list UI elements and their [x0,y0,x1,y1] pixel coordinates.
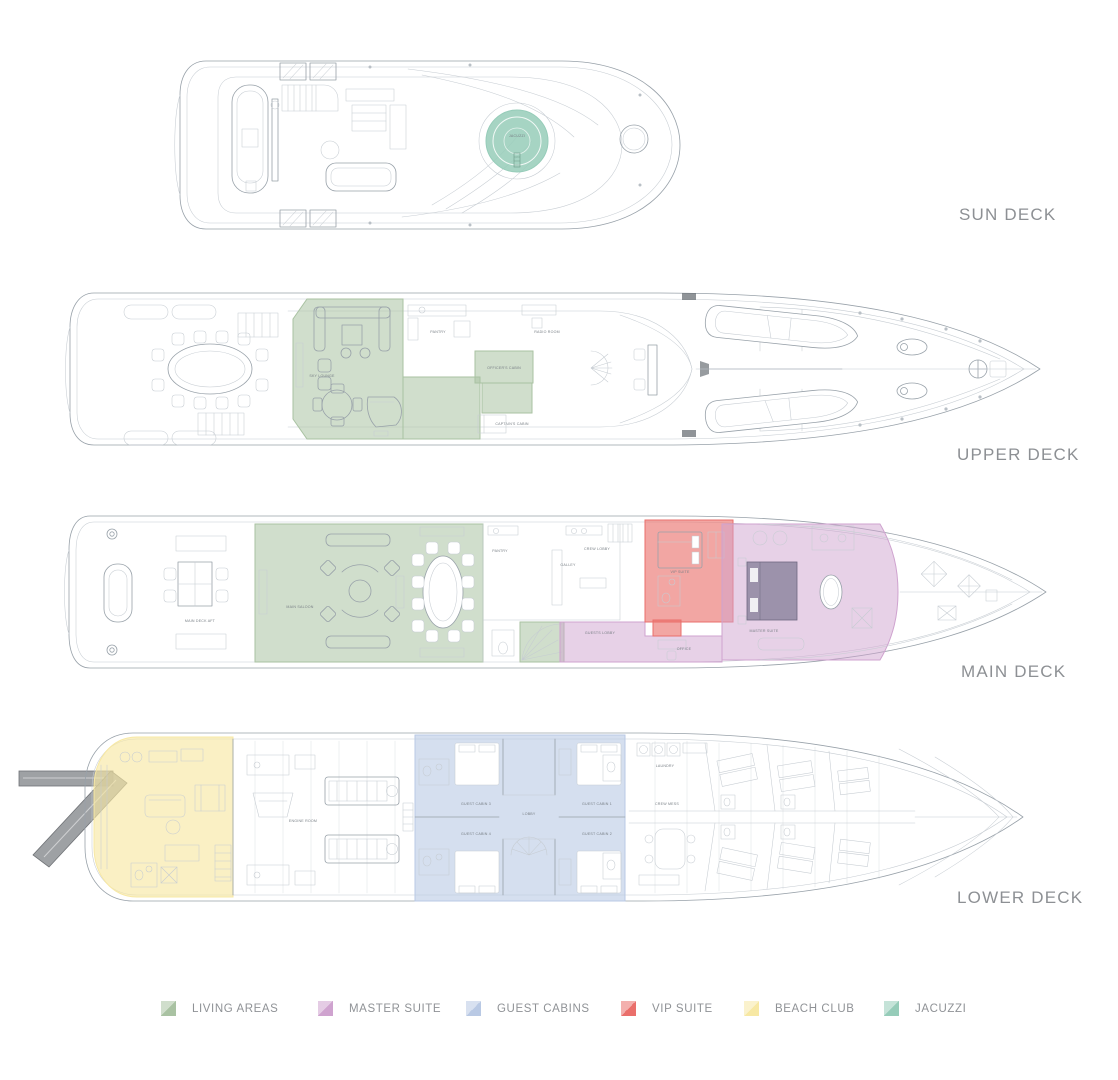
engine-room [247,755,413,885]
master-suite [722,524,898,660]
staircase [282,85,338,111]
room-label-officers-cabin: OFFICER'S CABIN [487,366,521,370]
crane [271,99,279,181]
legend-label-living-areas: LIVING AREAS [192,1003,278,1015]
bow-lines [899,749,1017,885]
room-label-guest-cabin-2: GUEST CABIN 2 [582,832,612,836]
vip-suite [645,520,733,636]
room-label-jacuzzi: JACUZZI [509,134,525,138]
sun-deck-plan: JACUZZI [170,55,690,235]
legend-label-master-suite: MASTER SUITE [349,1003,441,1015]
foredeck-tender-2 [704,386,860,434]
room-label-galley: GALLEY [560,563,576,567]
yacht-deck-plans: JACUZZI SUN DECK [0,0,1118,1080]
room-label-radio-room: RADIO ROOM [534,330,560,334]
jacuzzi: JACUZZI [479,103,555,179]
room-label-crew-lobby: CREW LOBBY [584,547,610,551]
jacuzzi-region [486,110,548,172]
room-label-pantry-upper: PANTRY [430,330,446,334]
liferaft-boxes [280,63,336,227]
legend-item-beach-club: BEACH CLUB [744,1001,855,1016]
legend-item-vip-suite: VIP SUITE [621,1001,713,1016]
sun-deck-label: SUN DECK [959,205,1056,225]
room-label-master-suite: MASTER SUITE [750,629,779,633]
bar-counter [346,89,406,149]
legend-swatch-jacuzzi [884,1001,899,1016]
room-label-guest-cabin-1: GUEST CABIN 1 [582,802,612,806]
legend-swatch-vip-suite [621,1001,636,1016]
master-region-lobby-office [560,622,722,662]
legend-item-living-areas: LIVING AREAS [161,1001,278,1016]
aft-deck-furniture [104,536,228,649]
room-label-engine-room: ENGINE ROOM [289,819,317,823]
legend-swatch-living-areas [161,1001,176,1016]
legend-swatch-guest-cabins [466,1001,481,1016]
legend-label-jacuzzi: JACUZZI [915,1003,966,1015]
room-label-main-deck-aft: MAIN DECK AFT [185,619,216,623]
mooring-cleats [107,529,117,655]
legend-label-vip-suite: VIP SUITE [652,1003,713,1015]
room-label-vip-suite: VIP SUITE [670,570,690,574]
hull-outline [180,61,680,229]
living-region-mid [403,377,480,439]
room-label-sky-lounge: SKY LOUNGE [309,374,335,378]
legend-item-master-suite: MASTER SUITE [318,1001,441,1016]
legend-label-guest-cabins: GUEST CABINS [497,1003,590,1015]
room-label-captains-cabin: CAPTAIN'S CABIN [495,422,529,426]
wheelhouse [591,345,657,395]
legend-label-beach-club: BEACH CLUB [775,1003,855,1015]
tender-boat [232,85,268,193]
room-label-guest-cabin-3: GUEST CABIN 3 [461,802,491,806]
pantry-fixtures [408,305,556,340]
living-region-sky-lounge [293,299,403,439]
upper-deck-label: UPPER DECK [957,445,1080,465]
lower-deck-label: LOWER DECK [957,888,1083,908]
lounge-sofa [321,141,396,191]
room-label-crew-mess: CREW MESS [655,802,679,806]
upper-deck-plan: PANTRY RADIO ROOM SKY LOUNGE OFFICER'S C… [60,285,1060,455]
room-label-office: OFFICE [677,647,692,651]
main-deck-label: MAIN DECK [961,662,1066,682]
legend-item-guest-cabins: GUEST CABINS [466,1001,590,1016]
deckhouse-outline [218,77,622,213]
bollard [682,293,696,300]
bollard [682,430,696,437]
main-deck-plan: MAIN DECK AFT MAIN SALO [60,510,1070,675]
mast-base-circle [620,125,648,153]
vip-region-vestibule [653,620,681,636]
legend-swatch-beach-club [744,1001,759,1016]
room-label-main-saloon: MAIN SALOON [286,605,313,609]
legend-swatch-master-suite [318,1001,333,1016]
lower-deck-plan: ENGINE ROOM LOBBY [15,725,1075,917]
room-label-laundry: LAUNDRY [656,764,675,768]
room-label-lobby: LOBBY [523,812,536,816]
living-region-stairs [482,383,532,413]
aft-dining-table [152,331,268,409]
room-label-pantry-main: PANTRY [492,549,508,553]
foredeck-tender-1 [704,304,860,352]
room-label-guests-lobby: GUESTS LOBBY [585,631,616,635]
room-label-guest-cabin-4: GUEST CABIN 4 [461,832,491,836]
legend-item-jacuzzi: JACUZZI [884,1001,966,1016]
